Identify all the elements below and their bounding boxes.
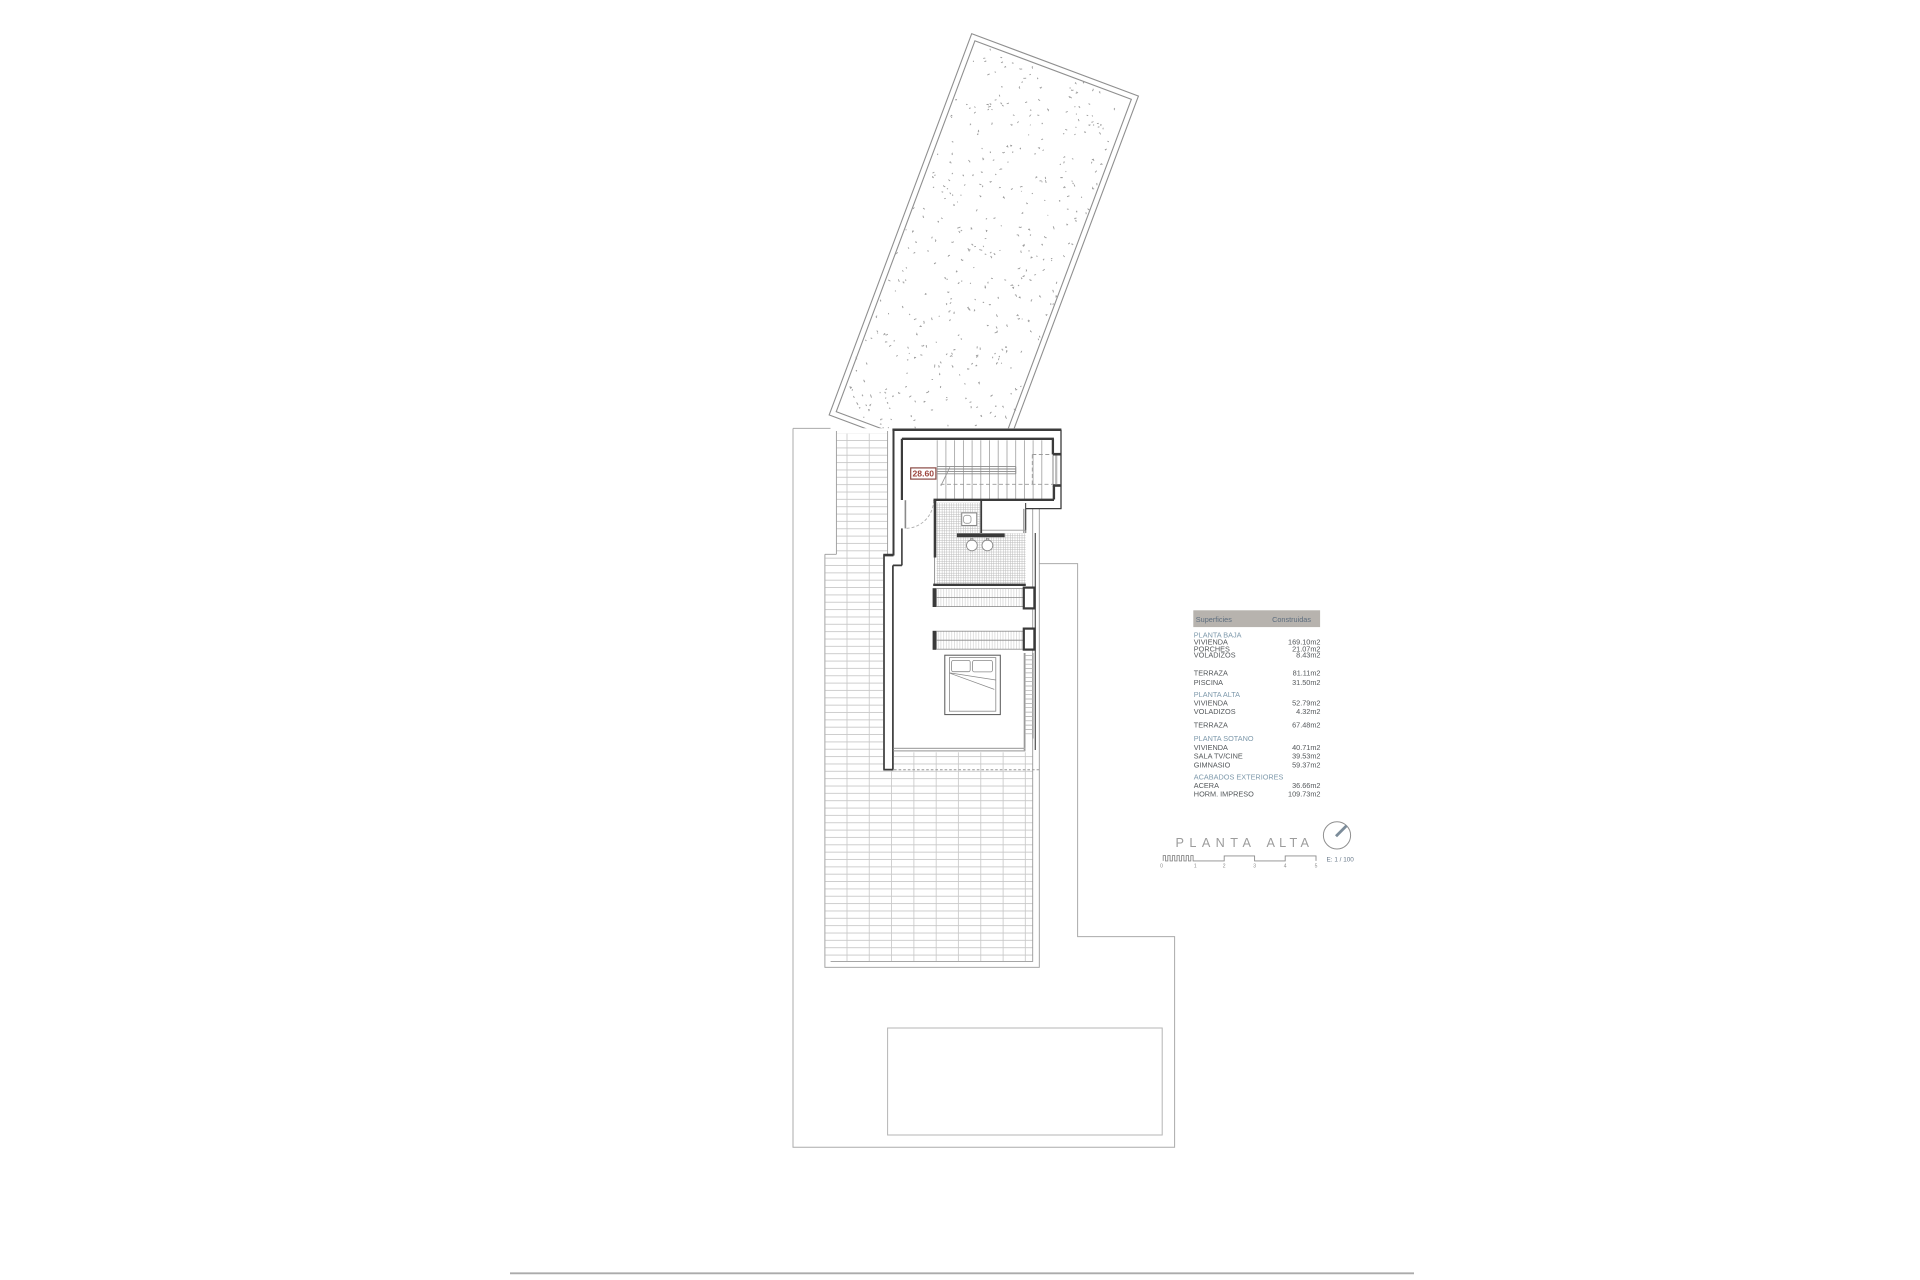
svg-text:Superficies: Superficies: [1196, 615, 1232, 624]
svg-text:52.79m2: 52.79m2: [1292, 698, 1320, 707]
svg-text:HORM. IMPRESO: HORM. IMPRESO: [1194, 789, 1254, 798]
svg-text:VIVIENDA: VIVIENDA: [1194, 698, 1228, 707]
svg-text:5: 5: [1315, 864, 1318, 870]
svg-text:ACABADOS EXTERIORES: ACABADOS EXTERIORES: [1194, 772, 1284, 781]
svg-text:Construidas: Construidas: [1272, 615, 1311, 624]
svg-text:TERRAZA: TERRAZA: [1194, 669, 1228, 678]
svg-text:E: 1 / 100: E: 1 / 100: [1327, 857, 1355, 864]
svg-text:31.50m2: 31.50m2: [1292, 678, 1320, 687]
svg-text:40.71m2: 40.71m2: [1292, 743, 1320, 752]
svg-text:GIMNASIO: GIMNASIO: [1194, 761, 1231, 770]
svg-text:VIVIENDA: VIVIENDA: [1194, 743, 1228, 752]
svg-text:28.60: 28.60: [913, 469, 935, 479]
svg-text:4: 4: [1284, 864, 1287, 870]
svg-text:SALA TV/CINE: SALA TV/CINE: [1194, 752, 1243, 761]
svg-text:PLANTA SOTANO: PLANTA SOTANO: [1194, 734, 1254, 743]
svg-text:67.48m2: 67.48m2: [1292, 721, 1320, 730]
svg-text:4.32m2: 4.32m2: [1296, 707, 1320, 716]
svg-text:TERRAZA: TERRAZA: [1194, 721, 1228, 730]
svg-text:81.11m2: 81.11m2: [1293, 669, 1321, 678]
svg-text:0: 0: [1160, 864, 1163, 870]
svg-text:3: 3: [1253, 864, 1256, 870]
svg-text:VOLADIZOS: VOLADIZOS: [1194, 651, 1236, 660]
svg-text:2: 2: [1223, 864, 1226, 870]
svg-text:ALTA: ALTA: [1267, 836, 1314, 850]
svg-text:109.73m2: 109.73m2: [1288, 789, 1320, 798]
svg-text:PISCINA: PISCINA: [1194, 678, 1223, 687]
svg-text:1: 1: [1194, 864, 1197, 870]
svg-text:PLANTA: PLANTA: [1176, 836, 1257, 850]
svg-text:8.43m2: 8.43m2: [1296, 651, 1320, 660]
svg-text:59.37m2: 59.37m2: [1292, 761, 1320, 770]
svg-text:39.53m2: 39.53m2: [1292, 752, 1320, 761]
svg-text:VOLADIZOS: VOLADIZOS: [1194, 707, 1236, 716]
